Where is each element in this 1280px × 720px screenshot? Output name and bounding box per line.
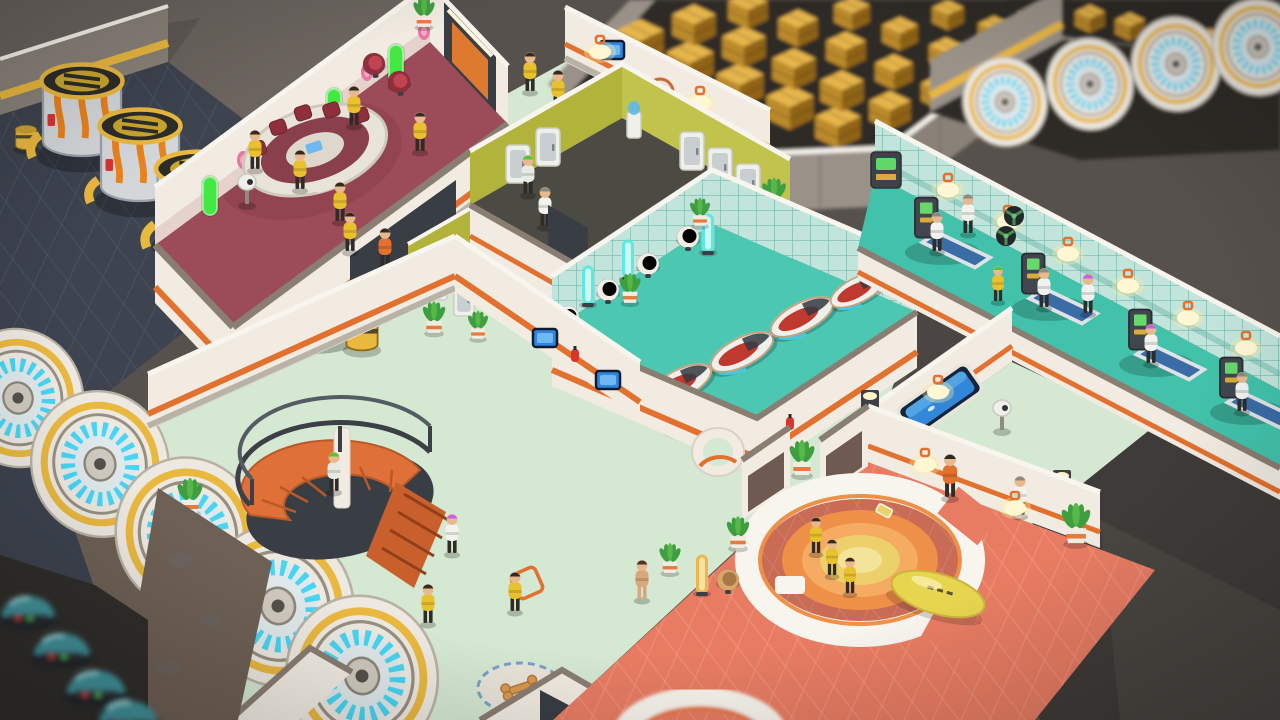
lair-scene[interactable] [0, 0, 1280, 720]
vignette [0, 0, 1280, 720]
game-viewport[interactable] [0, 0, 1280, 720]
